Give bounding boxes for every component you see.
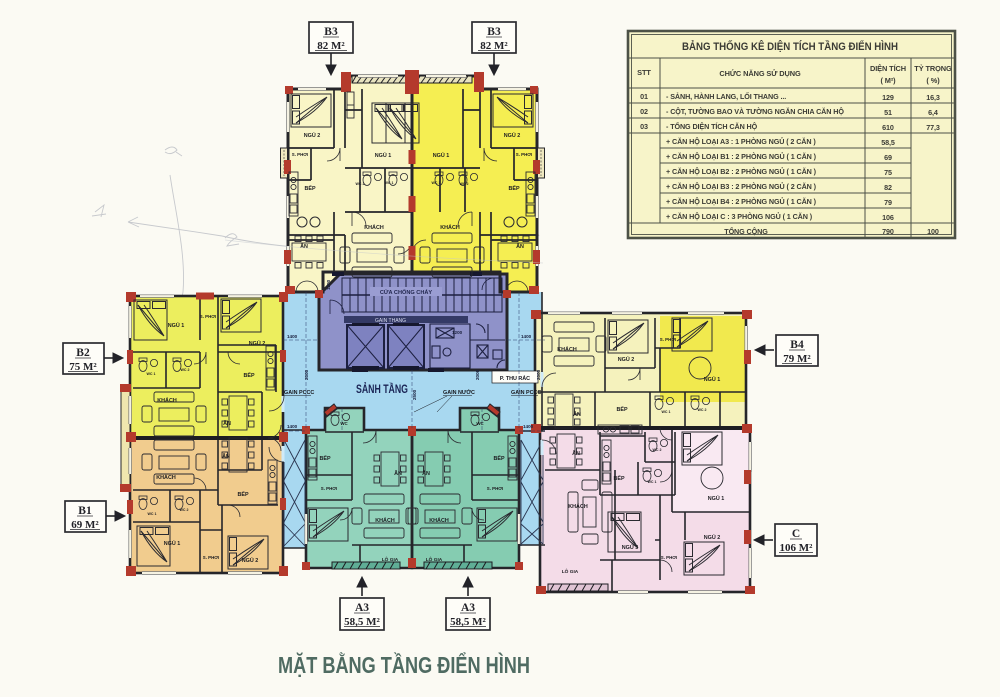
svg-text:BẢNG THỐNG KÊ DIỆN TÍCH TẦNG Đ: BẢNG THỐNG KÊ DIỆN TÍCH TẦNG ĐIỂN HÌNH [682, 39, 898, 53]
svg-text:1400: 1400 [287, 334, 298, 339]
svg-text:03: 03 [640, 122, 648, 131]
svg-text:BẾP: BẾP [319, 455, 330, 462]
svg-text:16,3: 16,3 [926, 93, 940, 102]
svg-text:1200: 1200 [452, 330, 463, 335]
svg-text:BẾP: BẾP [493, 455, 504, 462]
svg-text:WC 1: WC 1 [148, 512, 157, 516]
svg-text:100: 100 [927, 227, 939, 236]
svg-text:129: 129 [882, 93, 894, 102]
svg-text:1400: 1400 [523, 424, 534, 429]
svg-text:S. PHƠI: S. PHƠI [487, 486, 503, 491]
svg-text:WC 2: WC 2 [180, 508, 189, 512]
svg-text:GAIN NƯỚC: GAIN NƯỚC [443, 388, 475, 396]
svg-text:BẾP: BẾP [613, 475, 624, 482]
svg-text:ĂN: ĂN [300, 243, 308, 250]
svg-text:BẾP: BẾP [304, 185, 315, 192]
svg-text:1200: 1200 [326, 279, 331, 290]
svg-text:- TỔNG DIỆN TÍCH CĂN HỘ: - TỔNG DIỆN TÍCH CĂN HỘ [666, 122, 758, 131]
svg-text:WC 1: WC 1 [385, 181, 394, 185]
svg-text:A3: A3 [461, 602, 475, 614]
svg-text:ĂN: ĂN [572, 450, 580, 457]
svg-text:S. PHƠI: S. PHƠI [203, 555, 219, 560]
svg-text:WC 2: WC 2 [653, 448, 662, 452]
svg-text:B4: B4 [790, 339, 804, 351]
svg-text:ĂN: ĂN [223, 420, 231, 427]
svg-text:KHÁCH: KHÁCH [375, 517, 395, 524]
svg-text:79: 79 [884, 198, 892, 207]
svg-text:2000: 2000 [475, 369, 480, 380]
svg-text:S. PHƠI: S. PHƠI [516, 152, 532, 157]
svg-text:CỬA CHỐNG CHÁY: CỬA CHỐNG CHÁY [380, 289, 433, 296]
svg-text:WC: WC [340, 421, 348, 426]
svg-text:ĂN: ĂN [516, 243, 524, 250]
svg-text:KHÁCH: KHÁCH [156, 474, 176, 481]
svg-text:BẾP: BẾP [616, 406, 627, 413]
svg-text:WC 2: WC 2 [356, 182, 365, 186]
svg-text:NGỦ 1: NGỦ 1 [168, 322, 184, 329]
svg-text:ĂN: ĂN [573, 411, 581, 418]
svg-text:01: 01 [640, 92, 648, 101]
svg-text:S. PHƠI: S. PHƠI [661, 555, 677, 560]
svg-text:WC 1: WC 1 [648, 480, 657, 484]
svg-text:WC 1: WC 1 [147, 372, 156, 376]
svg-text:+ CĂN HỘ LOẠI C : 3 PHÒNG NGỦ: + CĂN HỘ LOẠI C : 3 PHÒNG NGỦ ( 1 CĂN ) [666, 212, 813, 221]
svg-text:P. THU RÁC: P. THU RÁC [500, 375, 530, 382]
svg-text:+ CĂN HỘ LOẠI B4 : 2 PHÒNG NG: + CĂN HỘ LOẠI B4 : 2 PHÒNG NGỦ ( 1 CĂN ) [666, 197, 817, 206]
svg-text:S. PHƠI: S. PHƠI [321, 486, 337, 491]
svg-text:1400: 1400 [521, 334, 532, 339]
svg-text:ĂN: ĂN [422, 470, 430, 477]
svg-text:BẾP: BẾP [237, 491, 248, 498]
svg-text:GAIN PCCC: GAIN PCCC [511, 390, 541, 396]
svg-text:TỶ TRỌNG: TỶ TRỌNG [914, 64, 952, 73]
svg-text:WC: WC [476, 421, 484, 426]
svg-text:02: 02 [640, 107, 648, 116]
svg-text:77,3: 77,3 [926, 123, 940, 132]
svg-text:6,4: 6,4 [928, 108, 938, 117]
svg-text:KHÁCH: KHÁCH [157, 397, 177, 404]
svg-text:BẾP: BẾP [508, 185, 519, 192]
svg-text:NGỦ 2: NGỦ 2 [704, 534, 720, 541]
svg-text:+ CĂN HỘ LOẠI B2 : 2 PHÒNG NG: + CĂN HỘ LOẠI B2 : 2 PHÒNG NGỦ ( 1 CĂN ) [666, 167, 817, 176]
svg-text:B1: B1 [78, 505, 92, 517]
svg-text:S. PHƠI: S. PHƠI [200, 314, 216, 319]
svg-text:NGỦ 2: NGỦ 2 [242, 557, 258, 564]
svg-text:NGỦ 2: NGỦ 2 [504, 132, 520, 139]
svg-text:KHÁCH: KHÁCH [429, 517, 449, 524]
svg-text:2500: 2500 [412, 389, 417, 400]
svg-text:2000: 2000 [536, 369, 541, 380]
svg-text:C: C [792, 528, 800, 540]
svg-text:NGỦ 1: NGỦ 1 [164, 540, 180, 547]
svg-text:ĂN: ĂN [394, 470, 402, 477]
svg-text:SẢNH TẦNG: SẢNH TẦNG [356, 383, 408, 396]
svg-text:KHÁCH: KHÁCH [557, 346, 577, 353]
svg-text:NGỦ 2: NGỦ 2 [618, 356, 634, 363]
svg-text:NGỦ 1: NGỦ 1 [704, 376, 720, 383]
svg-text:WC 1: WC 1 [662, 410, 671, 414]
svg-text:A3: A3 [355, 602, 369, 614]
svg-text:82: 82 [884, 183, 892, 192]
svg-text:- SẢNH, HÀNH LANG, LỐI THANG .: - SẢNH, HÀNH LANG, LỐI THANG ... [666, 91, 786, 101]
svg-text:KHÁCH: KHÁCH [364, 224, 384, 231]
svg-text:58,5: 58,5 [881, 138, 895, 147]
svg-text:B2: B2 [76, 347, 90, 359]
svg-text:S. PHƠI: S. PHƠI [660, 337, 676, 342]
svg-text:KHÁCH: KHÁCH [568, 503, 588, 510]
svg-text:B3: B3 [487, 26, 501, 38]
svg-text:NGỦ 2: NGỦ 2 [304, 132, 320, 139]
svg-text:2000: 2000 [304, 369, 309, 380]
svg-text:610: 610 [882, 123, 894, 132]
svg-text:NGỦ 3: NGỦ 3 [622, 544, 638, 551]
svg-text:MẶT BẰNG TẦNG ĐIỂN HÌNH: MẶT BẰNG TẦNG ĐIỂN HÌNH [278, 651, 530, 678]
svg-text:( %): ( %) [926, 76, 940, 85]
svg-text:106: 106 [882, 213, 894, 222]
svg-text:STT: STT [637, 68, 651, 77]
svg-text:+ CĂN HỘ LOẠI B1 : 2 PHÒNG NG: + CĂN HỘ LOẠI B1 : 2 PHÒNG NGỦ ( 1 CĂN ) [666, 152, 817, 161]
svg-text:+ CĂN HỘ LOẠI A3 : 1 PHÒNG NG: + CĂN HỘ LOẠI A3 : 1 PHÒNG NGỦ ( 2 CĂN ) [666, 137, 816, 146]
svg-text:DIỆN TÍCH: DIỆN TÍCH [870, 64, 906, 73]
svg-text:+ CĂN HỘ LOẠI B3 : 2 PHÒNG NG: + CĂN HỘ LOẠI B3 : 2 PHÒNG NGỦ ( 2 CĂN ) [666, 182, 817, 191]
svg-text:WC 2: WC 2 [460, 182, 469, 186]
svg-text:BẾP: BẾP [243, 372, 254, 379]
svg-text:75: 75 [884, 168, 892, 177]
svg-text:51: 51 [884, 108, 892, 117]
svg-text:NGỦ 1: NGỦ 1 [708, 495, 724, 502]
svg-text:NGỦ 1: NGỦ 1 [433, 152, 449, 159]
svg-text:790: 790 [882, 227, 894, 236]
svg-text:1400: 1400 [287, 424, 298, 429]
svg-text:CHỨC NĂNG SỬ DỤNG: CHỨC NĂNG SỬ DỤNG [719, 69, 801, 78]
svg-text:GAIN PCCC: GAIN PCCC [284, 390, 314, 396]
svg-text:WC 2: WC 2 [181, 368, 190, 372]
svg-text:S. PHƠI: S. PHƠI [292, 152, 308, 157]
svg-text:WC 2: WC 2 [698, 408, 707, 412]
svg-text:- CỘT, TƯỜNG BAO VÀ TƯỜNG NGĂN: - CỘT, TƯỜNG BAO VÀ TƯỜNG NGĂN CHIA CĂN … [666, 107, 844, 116]
svg-text:NGỦ 1: NGỦ 1 [375, 152, 391, 159]
svg-text:( M²): ( M²) [880, 76, 896, 85]
svg-text:69: 69 [884, 153, 892, 162]
svg-text:ĂN: ĂN [222, 453, 230, 460]
svg-text:TỔNG CỘNG: TỔNG CỘNG [724, 227, 768, 236]
svg-text:WC 1: WC 1 [432, 181, 441, 185]
svg-text:KHÁCH: KHÁCH [440, 224, 460, 231]
svg-text:NGỦ 2: NGỦ 2 [249, 340, 265, 347]
svg-text:B3: B3 [324, 26, 338, 38]
